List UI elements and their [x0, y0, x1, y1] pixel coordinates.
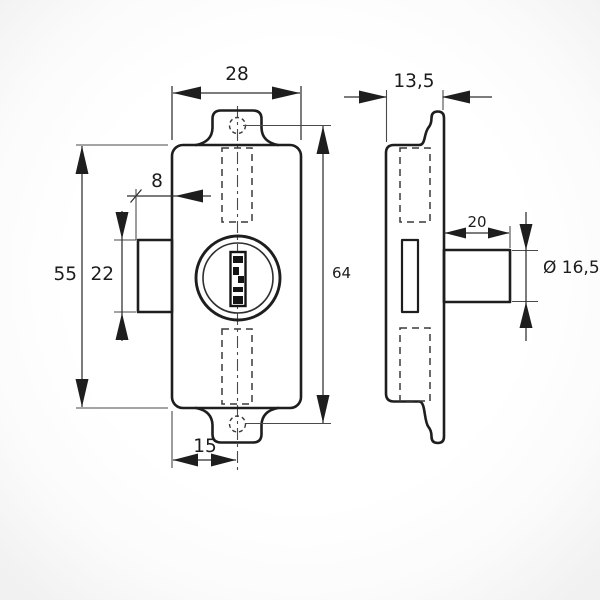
dimension-bolt-height: 22: [90, 211, 136, 341]
dimension-cylinder-length: 20: [444, 213, 510, 248]
dimension-side-depth: 13,5: [344, 71, 492, 142]
side-body: [386, 112, 444, 444]
dimension-cylinder-diameter: Ø 16,5: [512, 212, 600, 341]
footer-brands: kaprys-met GJM OKUCIA BUDOWLANE: [0, 470, 600, 590]
side-latch-slot: [402, 240, 418, 312]
dimension-front-width: 28: [172, 64, 301, 140]
front-view: [138, 106, 301, 471]
technical-drawing: 28 13,5 8 55: [0, 0, 600, 475]
dim-bolt-protrusion-label: 8: [151, 171, 163, 192]
keyhole-icon: [231, 252, 246, 306]
dim-hole-offset-label: 15: [193, 436, 217, 457]
dim-front-width-label: 28: [225, 64, 249, 85]
dim-bolt-height-label: 22: [90, 264, 114, 285]
dimension-bolt-protrusion: 8: [127, 171, 211, 240]
side-top-slot: [400, 148, 430, 222]
dimension-overall-height: 64: [243, 126, 351, 424]
dim-body-height-label: 55: [53, 264, 77, 285]
dim-overall-height-label: 64: [332, 264, 351, 282]
side-cylinder: [444, 250, 510, 302]
side-view: [386, 112, 510, 444]
dim-cylinder-length-label: 20: [467, 213, 486, 231]
lock-technical-drawing-page: 28 13,5 8 55: [0, 0, 600, 600]
side-bottom-slot: [400, 328, 430, 401]
dimension-hole-offset: 15: [172, 411, 236, 468]
dim-cylinder-diameter-label: Ø 16,5: [543, 258, 600, 278]
dim-side-depth-label: 13,5: [393, 71, 434, 92]
front-latch-bolt: [138, 240, 172, 312]
